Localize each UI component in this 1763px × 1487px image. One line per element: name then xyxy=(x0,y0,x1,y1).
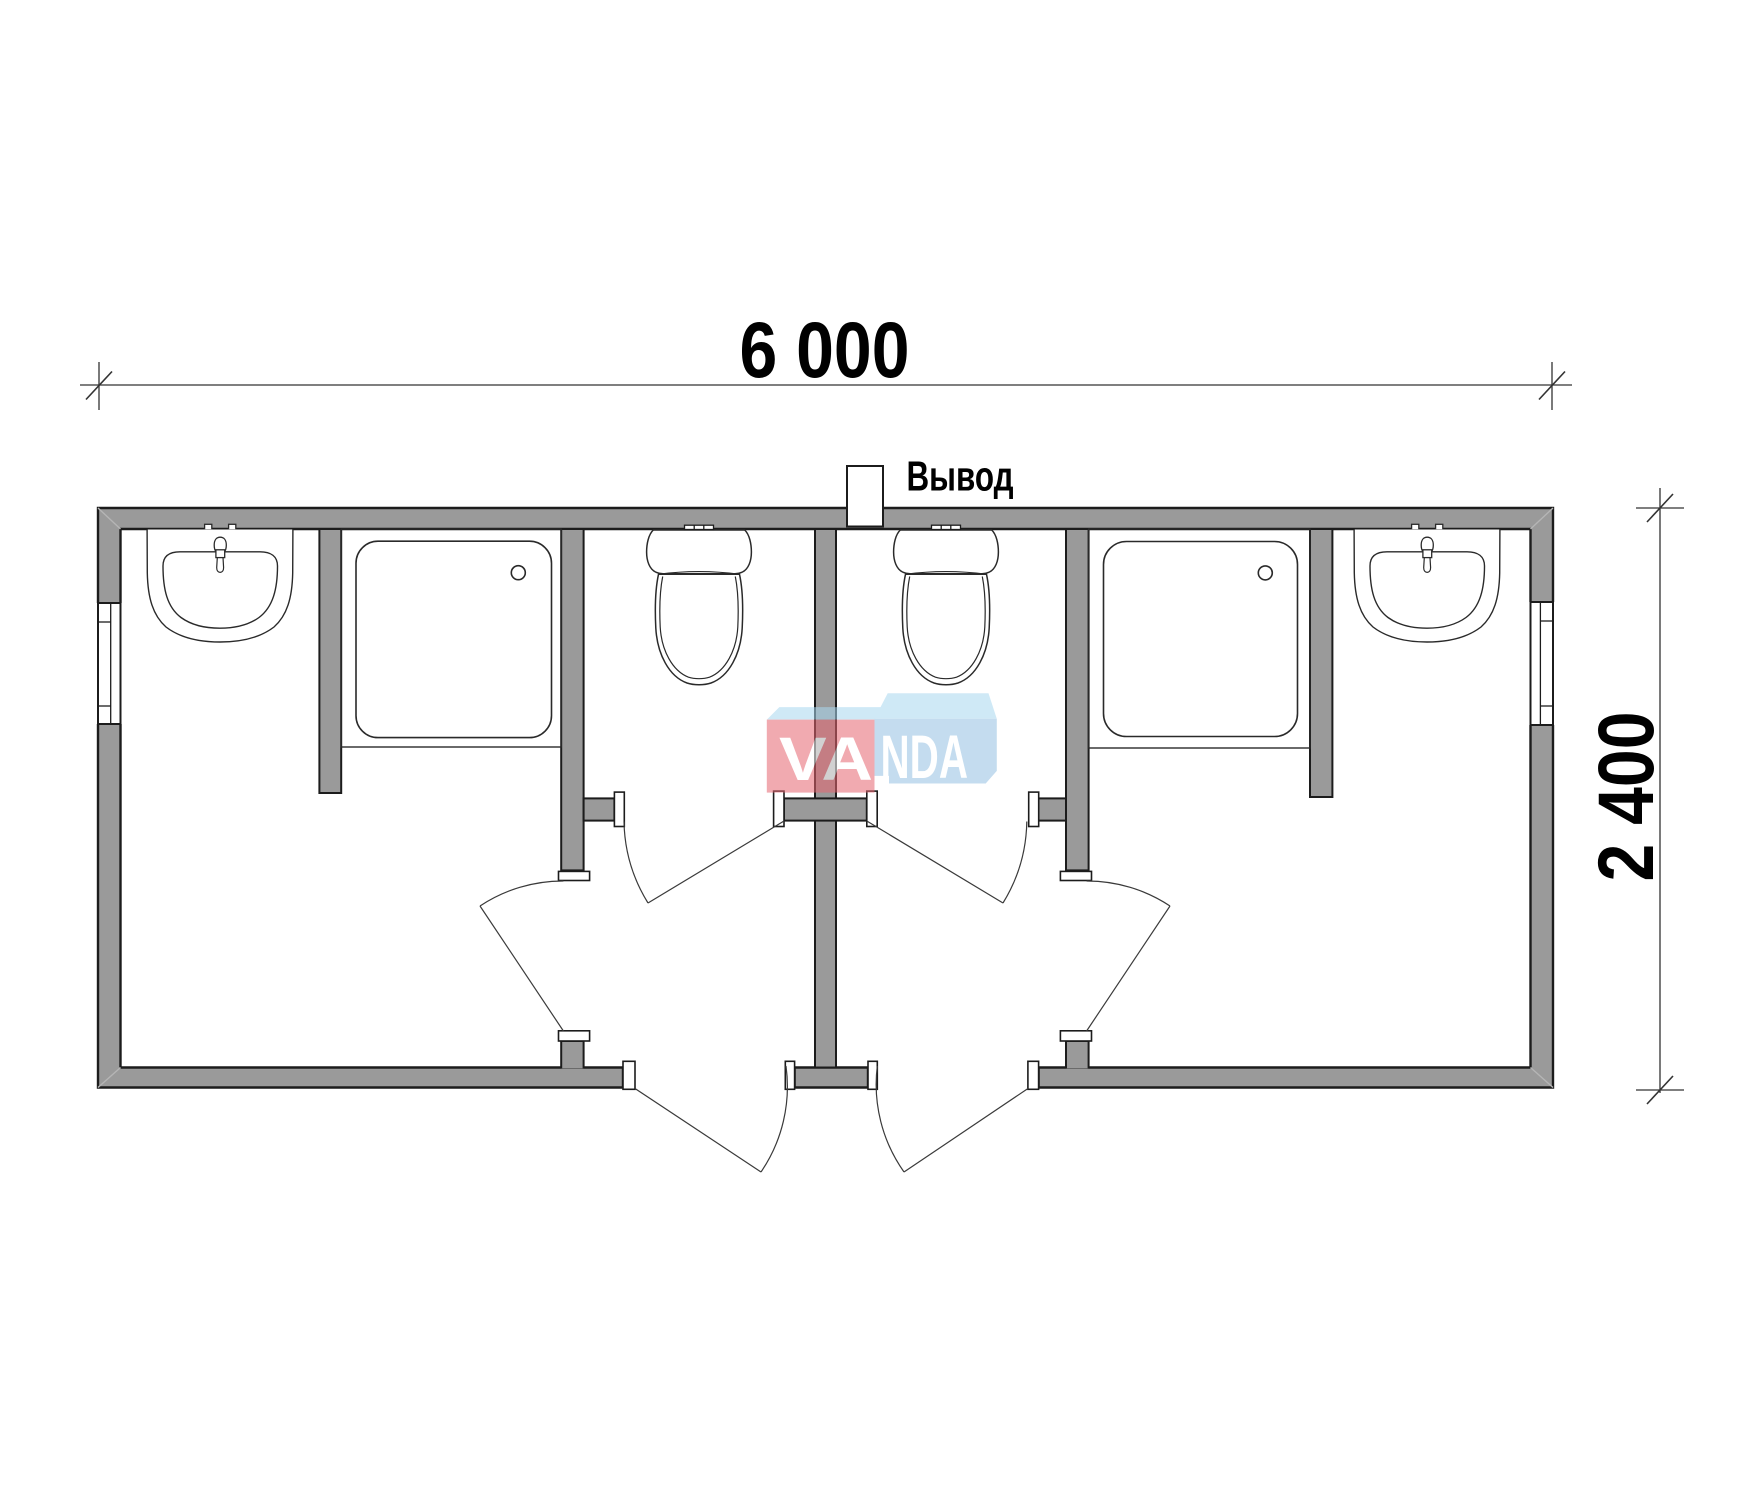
svg-text:6 000: 6 000 xyxy=(740,305,910,394)
svg-text:VA: VA xyxy=(779,725,873,793)
svg-text:Вывод: Вывод xyxy=(907,453,1014,500)
svg-text:2 400: 2 400 xyxy=(1581,712,1670,882)
svg-text:NDA: NDA xyxy=(881,723,969,791)
